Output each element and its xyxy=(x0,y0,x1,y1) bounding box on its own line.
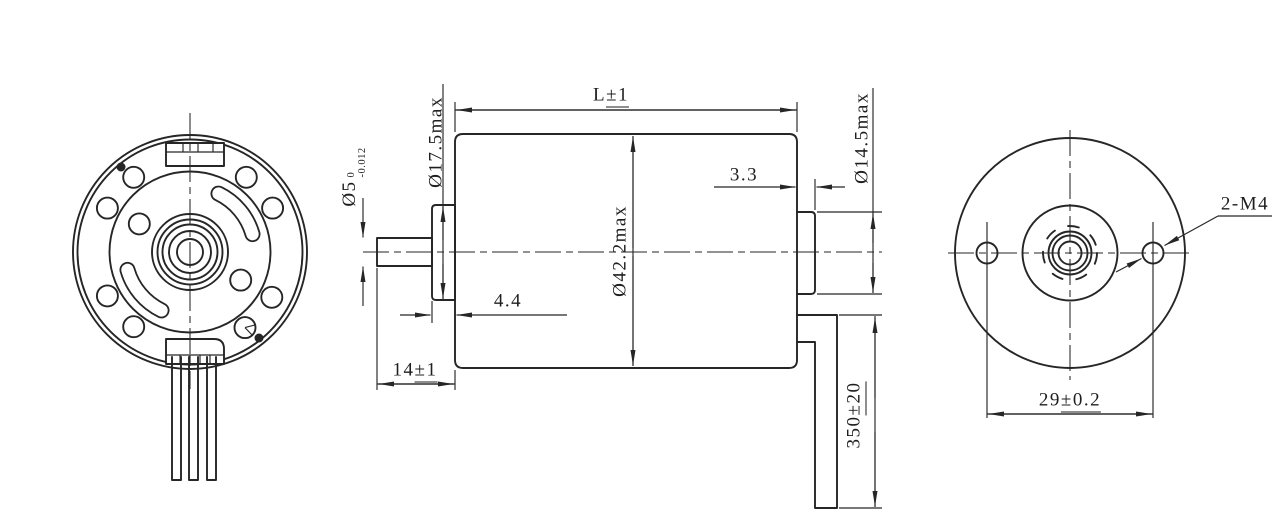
vent-hole xyxy=(123,316,144,337)
dim-body-length: L±1 xyxy=(593,86,629,105)
rotor-hole xyxy=(230,270,251,291)
weld-dot xyxy=(255,334,264,343)
vent-hole xyxy=(236,167,257,188)
dim-rear-boss-diameter: Ø14.5max xyxy=(853,92,872,184)
dim-hole-spacing: 29±0.2 xyxy=(1039,391,1101,410)
tolerance-upper: 0 xyxy=(346,147,357,177)
vent-hole xyxy=(97,285,118,306)
lead-wire xyxy=(172,357,181,480)
weld-dot xyxy=(117,163,126,172)
rear-boss xyxy=(797,212,815,294)
dim-flange-thickness: 4.4 xyxy=(494,292,522,311)
vent-slot xyxy=(128,270,162,311)
dim-value: Ø17.5max xyxy=(426,96,447,188)
vent-hole xyxy=(97,198,118,219)
vent-hole xyxy=(261,287,282,308)
vent-hole xyxy=(262,198,283,219)
terminal-block-outline xyxy=(166,143,224,166)
dim-tolerance: ±0.2 xyxy=(1061,390,1101,413)
lead-wires xyxy=(172,357,216,480)
mounting-holes-leader xyxy=(1116,216,1272,272)
dim-flange-thickness-lines xyxy=(400,301,567,323)
dim-value: 3.3 xyxy=(730,165,758,186)
motor-dimension-drawing: Ø50-0.012 Ø17.5max L±1 Ø42.2max 3.3 Ø14.… xyxy=(0,0,1280,531)
dim-front-boss-diameter: Ø17.5max xyxy=(427,96,446,188)
dim-value: Ø42.2max xyxy=(610,205,631,297)
dim-tolerance: ±1 xyxy=(606,85,629,108)
drawing-geometry xyxy=(0,0,1280,531)
dim-body-diameter: Ø42.2max xyxy=(611,205,630,297)
dim-rear-step-length: 3.3 xyxy=(730,166,758,185)
dim-value: L xyxy=(593,85,606,106)
vent-hole xyxy=(123,167,144,188)
dim-value: 2-M4 xyxy=(1221,194,1269,215)
dim-tolerance: ±20 xyxy=(844,382,867,416)
dim-value: 29 xyxy=(1039,390,1061,411)
cable-outline xyxy=(797,315,837,508)
dim-value: Ø5 xyxy=(339,180,360,206)
dim-value: 350 xyxy=(844,415,865,448)
terminal-block-top xyxy=(166,143,224,166)
tolerance-lower: -0.012 xyxy=(357,147,368,177)
dim-tolerance: ±1 xyxy=(415,360,438,383)
rear-view xyxy=(948,130,1272,418)
dim-shaft-extension: 14±1 xyxy=(393,361,438,380)
front-view xyxy=(73,113,307,480)
dim-tolerance-stack: 0-0.012 xyxy=(346,147,368,177)
dim-value: 14 xyxy=(393,360,415,381)
rotor-hole xyxy=(129,213,150,234)
vent-slot xyxy=(219,194,253,235)
lead-wire xyxy=(207,357,216,480)
dim-value: Ø14.5max xyxy=(852,92,873,184)
dim-shaft-diameter: Ø50-0.012 xyxy=(340,147,368,206)
label-mounting-holes: 2-M4 xyxy=(1221,195,1269,214)
dim-value: 4.4 xyxy=(494,291,522,312)
dim-cable-length: 350±20 xyxy=(845,382,864,449)
